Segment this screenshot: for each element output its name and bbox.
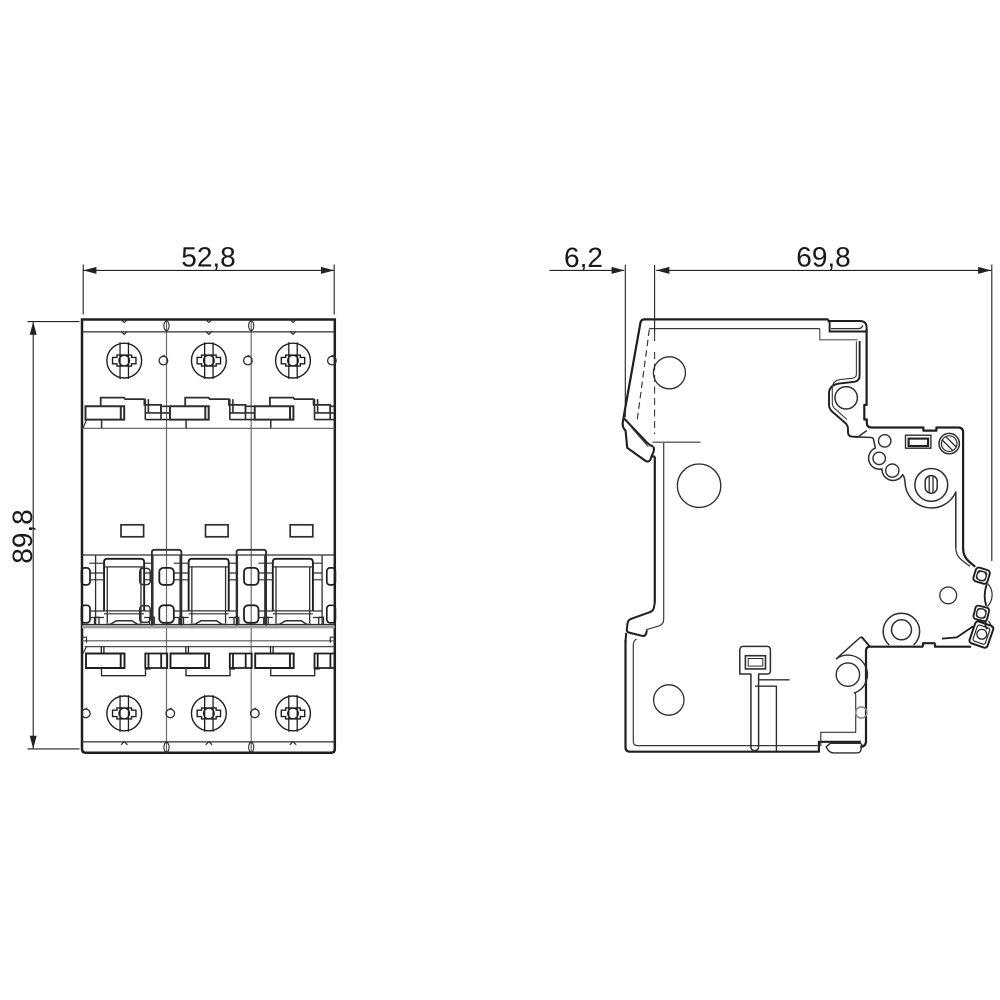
svg-text:69,8: 69,8: [796, 241, 851, 272]
svg-text:6,2: 6,2: [564, 242, 603, 273]
svg-text:52,8: 52,8: [181, 241, 236, 272]
svg-text:89,8: 89,8: [7, 509, 38, 564]
